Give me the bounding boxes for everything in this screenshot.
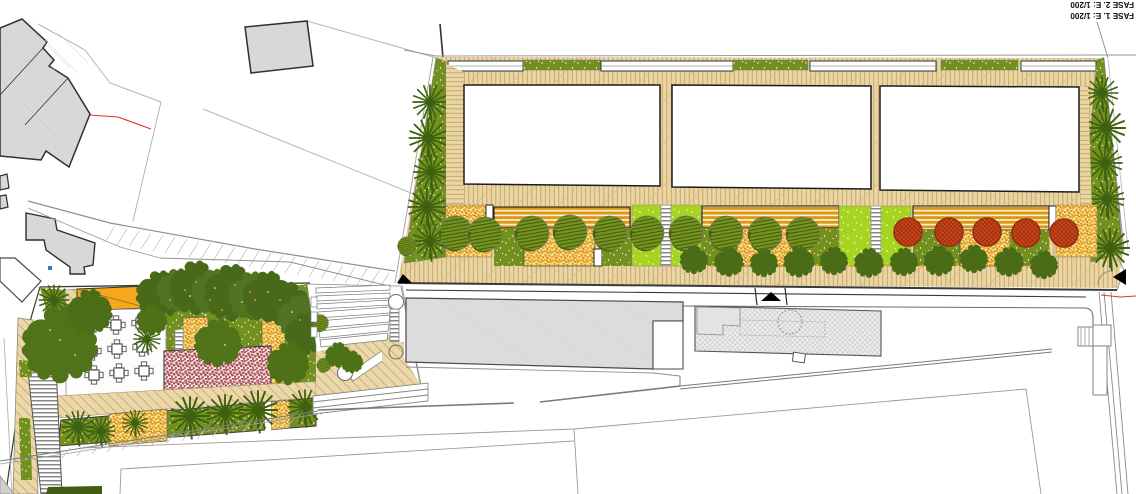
svg-text:FASE 2. E: 1/200: FASE 2. E: 1/200 <box>1070 0 1134 9</box>
svg-text:FASE 1. E: 1/200: FASE 1. E: 1/200 <box>1070 11 1134 20</box>
